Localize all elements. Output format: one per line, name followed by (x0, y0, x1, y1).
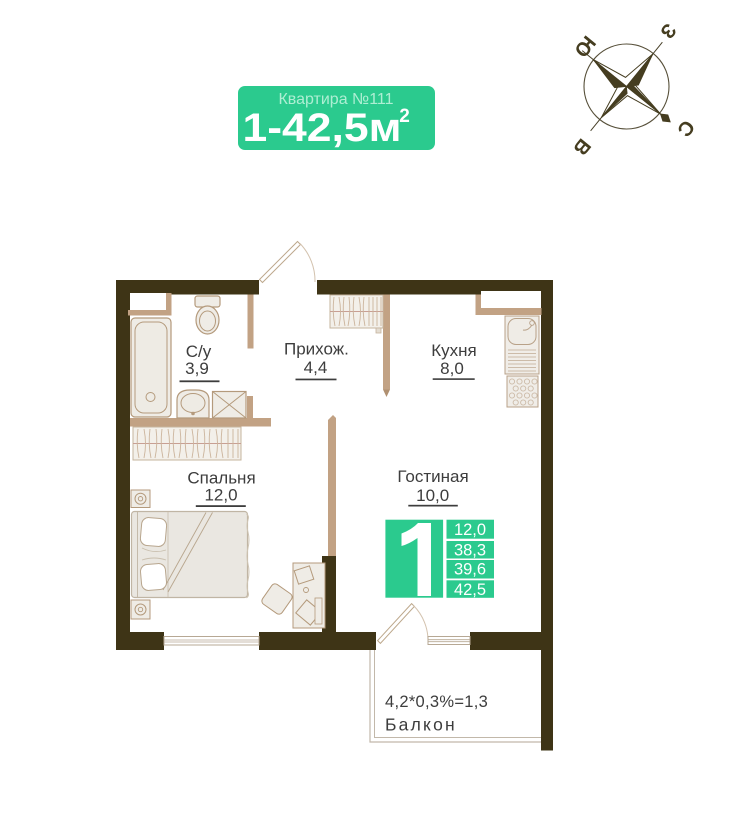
svg-text:4,4: 4,4 (304, 358, 328, 377)
svg-text:Гостиная: Гостиная (397, 467, 468, 486)
svg-text:12,0: 12,0 (204, 485, 237, 504)
svg-text:3,9: 3,9 (185, 359, 209, 378)
svg-text:Прихож.: Прихож. (284, 340, 349, 359)
svg-text:2: 2 (399, 106, 410, 127)
svg-text:10,0: 10,0 (416, 486, 449, 505)
svg-text:42,5: 42,5 (454, 581, 486, 599)
svg-text:8,0: 8,0 (440, 359, 464, 378)
svg-text:12,0: 12,0 (454, 521, 486, 539)
svg-text:38,3: 38,3 (454, 542, 486, 560)
svg-text:Балкон: Балкон (385, 715, 457, 735)
svg-text:39,6: 39,6 (454, 561, 486, 579)
svg-text:Кухня: Кухня (431, 341, 477, 360)
svg-text:4,2*0,3%=1,3: 4,2*0,3%=1,3 (385, 693, 488, 711)
svg-text:1-42,5м: 1-42,5м (243, 106, 402, 150)
